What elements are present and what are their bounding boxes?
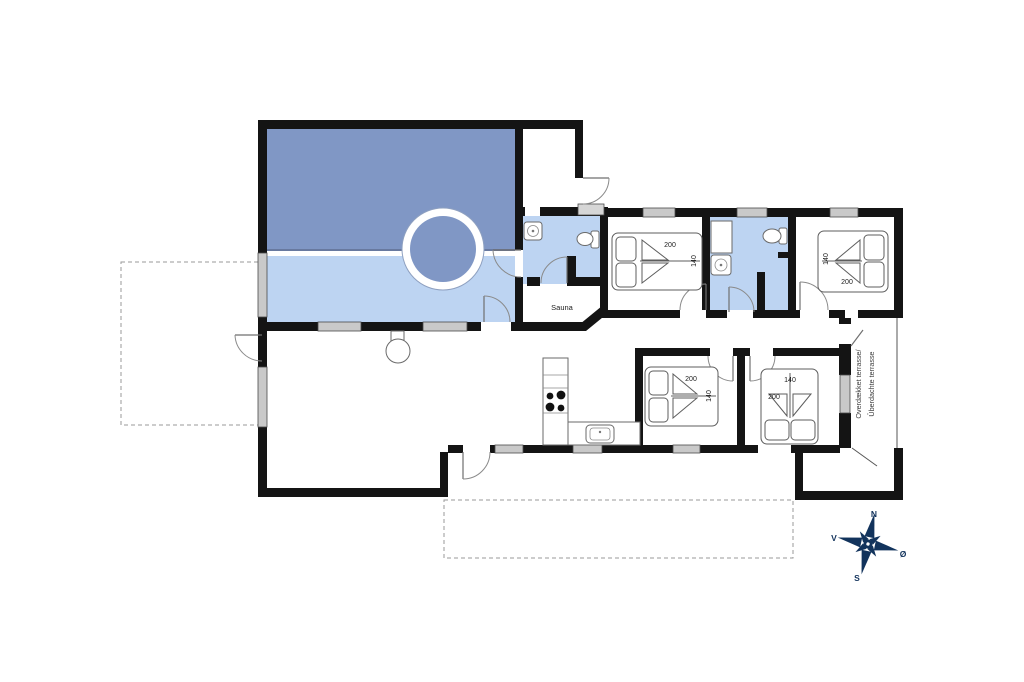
floor-plan-canvas: 200 140 140 200 200 140 140 200 Sauna Ov… (0, 0, 1024, 682)
bed-width-label: 140 (784, 377, 796, 384)
compass-east-label: Ø (900, 549, 907, 559)
covered-terrace-label: Overdækket terrasse/ Überdachte terrasse (854, 349, 876, 418)
bedroom-3-bed: 200 140 (645, 367, 718, 426)
window (258, 253, 267, 317)
fireplace (386, 331, 410, 363)
window (737, 208, 767, 217)
bed-length-label: 200 (841, 279, 853, 286)
kitchen-sink (586, 425, 614, 443)
bed-length-label: 200 (685, 376, 697, 383)
bed-width-label: 140 (706, 390, 713, 402)
open-terrace-south (444, 500, 793, 558)
kitchen (543, 358, 640, 445)
bed-width-label: 140 (691, 255, 698, 267)
east-terrace-door (851, 330, 863, 346)
pillow (791, 420, 815, 440)
pillow (649, 371, 668, 395)
svg-text:Überdachte terrasse: Überdachte terrasse (867, 351, 876, 416)
bed-width-label: 140 (823, 253, 830, 265)
hot-tub (402, 208, 484, 290)
window (495, 445, 523, 453)
window (643, 208, 675, 217)
compass-rose: N S V Ø (831, 507, 907, 583)
bedroom-4-bed: 140 200 (761, 369, 818, 444)
compass-south-label: S (854, 573, 860, 583)
floor-plan: 200 140 140 200 200 140 140 200 Sauna Ov… (0, 0, 1024, 682)
window (318, 322, 361, 331)
window (840, 375, 850, 413)
window (830, 208, 858, 217)
sauna-label: Sauna (551, 303, 574, 312)
entrance-threshold (578, 204, 604, 215)
south-entrance-door (463, 452, 490, 479)
pillow (649, 398, 668, 422)
bed-length-label: 200 (664, 242, 676, 249)
open-terrace-west (121, 262, 260, 425)
window (423, 322, 467, 331)
toilet (763, 228, 787, 244)
bedroom-2-bed: 140 200 (818, 231, 888, 292)
west-terrace-door (235, 335, 262, 361)
bath-counter (711, 221, 732, 253)
compass-west-label: V (831, 533, 837, 543)
window (673, 445, 700, 453)
window (258, 367, 267, 427)
pool-room-floor (267, 129, 515, 322)
pillow (765, 420, 789, 440)
svg-text:Overdækket terrasse/: Overdækket terrasse/ (854, 349, 863, 418)
terrace-corner-line (852, 448, 877, 466)
kitchen-counter (543, 358, 568, 445)
bedroom-1-bed: 200 140 (612, 233, 702, 290)
entrance-door (583, 178, 609, 204)
window (573, 445, 602, 453)
compass-north-label: N (871, 509, 877, 519)
bed-length-label: 200 (768, 394, 780, 401)
pillow (864, 262, 884, 287)
pillow (616, 237, 636, 261)
pillow (864, 235, 884, 260)
pillow (616, 263, 636, 287)
